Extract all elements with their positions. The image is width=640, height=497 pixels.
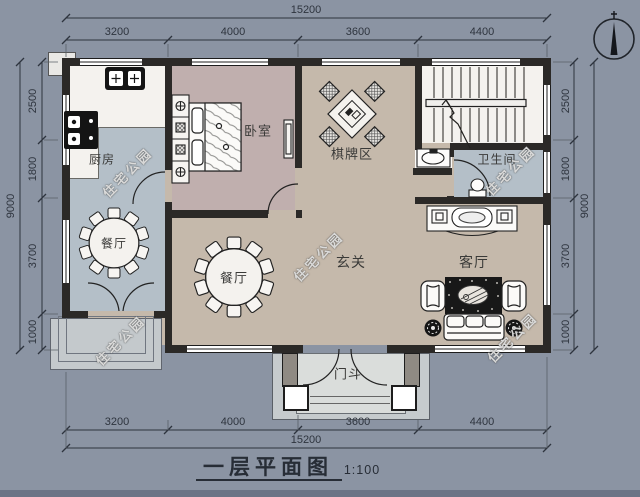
wall-living-top — [415, 197, 543, 204]
stair-floor — [422, 66, 543, 143]
dim-bottom-seg4: 4400 — [470, 416, 494, 428]
title-underline — [196, 479, 342, 481]
dim-left-total: 9000 — [5, 194, 17, 218]
room-label-bedroom: 卧室 — [244, 121, 272, 140]
window-bath-right — [543, 152, 551, 193]
vestibule-wall-left — [282, 353, 298, 387]
window-dining-left — [62, 220, 70, 283]
dim-left-seg2: 1800 — [27, 157, 39, 181]
window-kitchen-top — [80, 58, 142, 66]
dim-left-seg1: 2500 — [27, 89, 39, 113]
window-bedroom-top — [192, 58, 268, 66]
north-compass-icon — [594, 11, 634, 59]
wall-bedroom-bottom — [165, 210, 268, 218]
room-label-kitchen: 厨房 — [89, 151, 115, 168]
dim-right-seg2: 1800 — [560, 157, 572, 181]
wall-niche-bottom — [413, 168, 452, 175]
wall-a-upper — [165, 58, 172, 170]
vestibule-floor — [296, 353, 406, 414]
vestibule-wall-right — [404, 353, 420, 387]
wall-bedroom-right — [295, 58, 302, 168]
vestibule-step — [310, 396, 390, 397]
dim-right-seg1: 2500 — [560, 89, 572, 113]
bedroom-floor — [172, 66, 295, 210]
room-label-vestibule: 门斗 — [334, 364, 362, 383]
wall-bedroom-bottom-stub — [296, 210, 302, 218]
dim-right-seg4: 1000 — [560, 320, 572, 344]
room-label-dining-1: 餐厅 — [101, 235, 127, 252]
dim-bottom-seg2: 4000 — [221, 416, 245, 428]
dim-left-seg3: 3700 — [27, 244, 39, 268]
dim-top-seg4: 4400 — [470, 26, 494, 38]
dim-top-seg1: 3200 — [105, 26, 129, 38]
window-stair-top — [432, 58, 520, 66]
dim-right-total: 9000 — [579, 194, 591, 218]
floor-plan-page: 15200 3200 4000 3600 4400 3200 4000 3600… — [0, 0, 640, 497]
window-stair-right — [543, 85, 551, 135]
window-dining-bottom — [187, 345, 272, 353]
dim-top-seg2: 4000 — [221, 26, 245, 38]
dim-left-seg4: 1000 — [27, 320, 39, 344]
dim-bottom-total: 15200 — [291, 434, 322, 446]
room-label-living: 客厅 — [459, 252, 489, 272]
vestibule-column-right — [391, 385, 417, 411]
vestibule-column-left — [283, 385, 309, 411]
wall-a-lower — [165, 202, 172, 353]
wall-stair-left — [415, 58, 422, 150]
kitchen-counter-top — [70, 66, 165, 128]
vestibule-step — [310, 403, 390, 404]
dim-bottom-seg3: 3600 — [346, 416, 370, 428]
window-game-top — [322, 58, 400, 66]
dim-top-total: 15200 — [291, 4, 322, 16]
wall-stair-bottom-a — [415, 143, 422, 150]
room-label-foyer: 玄关 — [336, 252, 366, 272]
window-living-right — [543, 225, 551, 305]
room-label-game-area: 棋牌区 — [331, 144, 373, 163]
dim-top-seg3: 3600 — [346, 26, 370, 38]
wall-bath-left-stub-a — [447, 150, 454, 157]
bottom-edge-strip — [0, 490, 640, 497]
dim-right-seg3: 3700 — [560, 244, 572, 268]
dim-bottom-seg1: 3200 — [105, 416, 129, 428]
window-kitchen-left — [62, 95, 70, 165]
room-label-dining-2: 餐厅 — [220, 268, 248, 287]
wall-bottom-left-a — [62, 311, 88, 318]
scale-label: 1:100 — [344, 463, 380, 477]
page-title: 一层平面图 — [203, 451, 333, 481]
